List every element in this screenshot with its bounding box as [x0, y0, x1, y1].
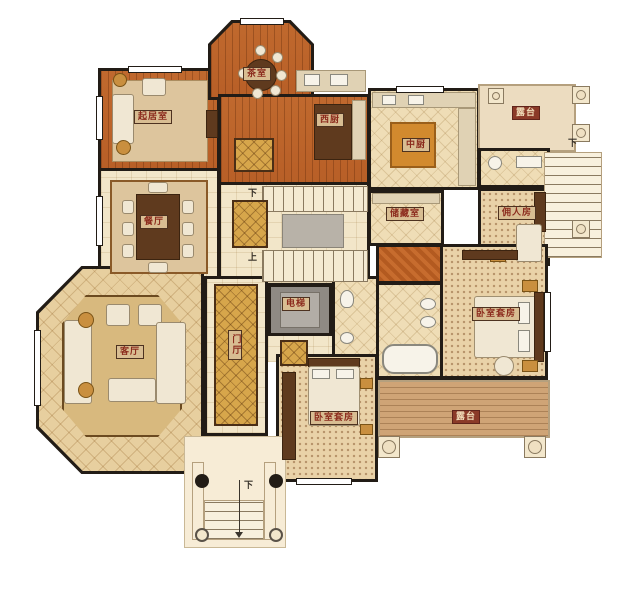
- master-bath-sink: [420, 316, 436, 328]
- deck-column-cap: [382, 440, 396, 454]
- stair-flight-upper: [262, 186, 368, 212]
- stair-down-label: 下: [248, 190, 257, 199]
- bedroom-pillow: [312, 369, 330, 379]
- deck-column: [524, 436, 546, 458]
- cn-kitchen-counter-right: [458, 108, 476, 186]
- label-foyer: 门厅: [228, 330, 242, 360]
- window: [296, 478, 352, 485]
- terrace-column: [488, 88, 504, 104]
- terrace-column-cap: [576, 224, 586, 234]
- servant-bath-sink: [488, 156, 502, 170]
- stair-up-label: 上: [248, 254, 257, 263]
- master-pillow: [518, 330, 530, 352]
- living-sofa-bottom: [108, 378, 156, 402]
- room-servant-bath: [478, 148, 550, 188]
- entry-steps: [204, 500, 264, 540]
- dining-chair: [148, 182, 168, 193]
- wc-toilet: [340, 290, 354, 308]
- label-bedroom-suite: 卧室套房: [310, 411, 358, 425]
- porch-column: [269, 474, 283, 488]
- family-plant-bottom: [116, 140, 131, 155]
- stair-flight-lower: [262, 250, 368, 282]
- entry-arrow-line: [239, 480, 240, 532]
- master-nightstand: [522, 280, 538, 292]
- label-dining-room: 餐厅: [140, 215, 168, 229]
- west-kitchen-stove: [330, 74, 348, 86]
- master-dresser: [462, 250, 518, 260]
- wc-sink: [340, 332, 354, 344]
- label-master-suite: 卧室套房: [472, 307, 520, 321]
- exterior-stairs-right: [544, 152, 602, 258]
- dining-chair: [122, 222, 134, 236]
- tea-chair: [255, 45, 266, 56]
- dining-chair: [122, 200, 134, 214]
- terrace-column-cap: [576, 128, 586, 138]
- cn-kitchen-stove: [408, 95, 424, 105]
- stair-landing: [282, 214, 344, 248]
- bedroom-wardrobe: [282, 372, 296, 460]
- master-bath-sink: [420, 298, 436, 310]
- label-terrace-bottom: 露台: [452, 410, 480, 424]
- label-west-kitchen: 西厨: [316, 113, 344, 127]
- terrace-column: [572, 86, 590, 104]
- hall-mat: [234, 138, 274, 172]
- terrace-column-cap: [576, 90, 586, 100]
- room-closet: [376, 244, 444, 284]
- window: [96, 96, 103, 140]
- window: [544, 292, 551, 352]
- storage-shelf: [372, 193, 440, 204]
- porch-column: [195, 474, 209, 488]
- cn-kitchen-sink: [382, 95, 396, 105]
- dining-chair: [182, 222, 194, 236]
- hall-mat: [280, 340, 308, 366]
- tea-chair: [270, 85, 281, 96]
- tea-chair: [272, 52, 283, 63]
- tea-chair: [276, 70, 287, 81]
- label-terrace-top: 露台: [512, 106, 540, 120]
- dining-chair: [148, 262, 168, 273]
- hall-mat: [232, 200, 268, 248]
- porch-column-base: [195, 528, 209, 542]
- master-nightstand: [522, 360, 538, 372]
- bedroom-nightstand: [360, 424, 373, 435]
- window: [34, 330, 41, 406]
- room-wc: [332, 276, 382, 362]
- master-chair: [494, 356, 514, 376]
- master-headboard: [534, 292, 544, 362]
- dining-chair: [182, 244, 194, 258]
- family-plant-top: [113, 73, 127, 87]
- bedroom-pillow: [336, 369, 354, 379]
- label-family-room: 起居室: [134, 110, 172, 124]
- label-chinese-kitchen: 中厨: [402, 138, 430, 152]
- dining-chair: [122, 244, 134, 258]
- dining-chair: [182, 200, 194, 214]
- entry-stair-down-label: 下: [244, 482, 253, 491]
- living-sofa-right: [156, 322, 186, 404]
- window: [396, 86, 444, 93]
- terrace-column: [572, 220, 590, 238]
- deck-column: [378, 436, 400, 458]
- window: [240, 18, 284, 25]
- servant-bath-tub: [516, 156, 542, 168]
- window: [128, 66, 182, 73]
- west-kitchen-sink: [304, 74, 320, 86]
- floor-plan: 茶室 起居室 西厨 中厨 露台 储藏室 佣人房 餐厅 客厅 门厅 电梯 卧室套房…: [0, 0, 640, 596]
- servant-bed: [516, 224, 542, 262]
- terrace-column-cap: [492, 92, 500, 100]
- label-servant-room: 佣人房: [498, 206, 536, 220]
- tea-chair: [252, 88, 263, 99]
- label-living-room: 客厅: [116, 345, 144, 359]
- porch-column-base: [269, 528, 283, 542]
- family-sofa: [112, 94, 134, 144]
- room-terrace-bottom: [378, 380, 550, 438]
- label-storage: 储藏室: [386, 207, 424, 221]
- entry-arrow-head: [235, 532, 243, 538]
- living-side-table: [78, 312, 94, 328]
- label-tea-room: 茶室: [243, 67, 271, 81]
- family-cabinet: [206, 110, 218, 138]
- west-kitchen-side-counter: [352, 100, 366, 160]
- deck-column-cap: [528, 440, 542, 454]
- master-bathtub: [382, 344, 438, 374]
- living-armchair: [106, 304, 130, 326]
- bedroom-nightstand: [360, 378, 373, 389]
- living-side-table: [78, 382, 94, 398]
- exterior-stair-down-label: 下: [568, 140, 577, 149]
- window: [96, 196, 103, 246]
- family-armchair: [142, 78, 166, 96]
- label-elevator: 电梯: [282, 297, 310, 311]
